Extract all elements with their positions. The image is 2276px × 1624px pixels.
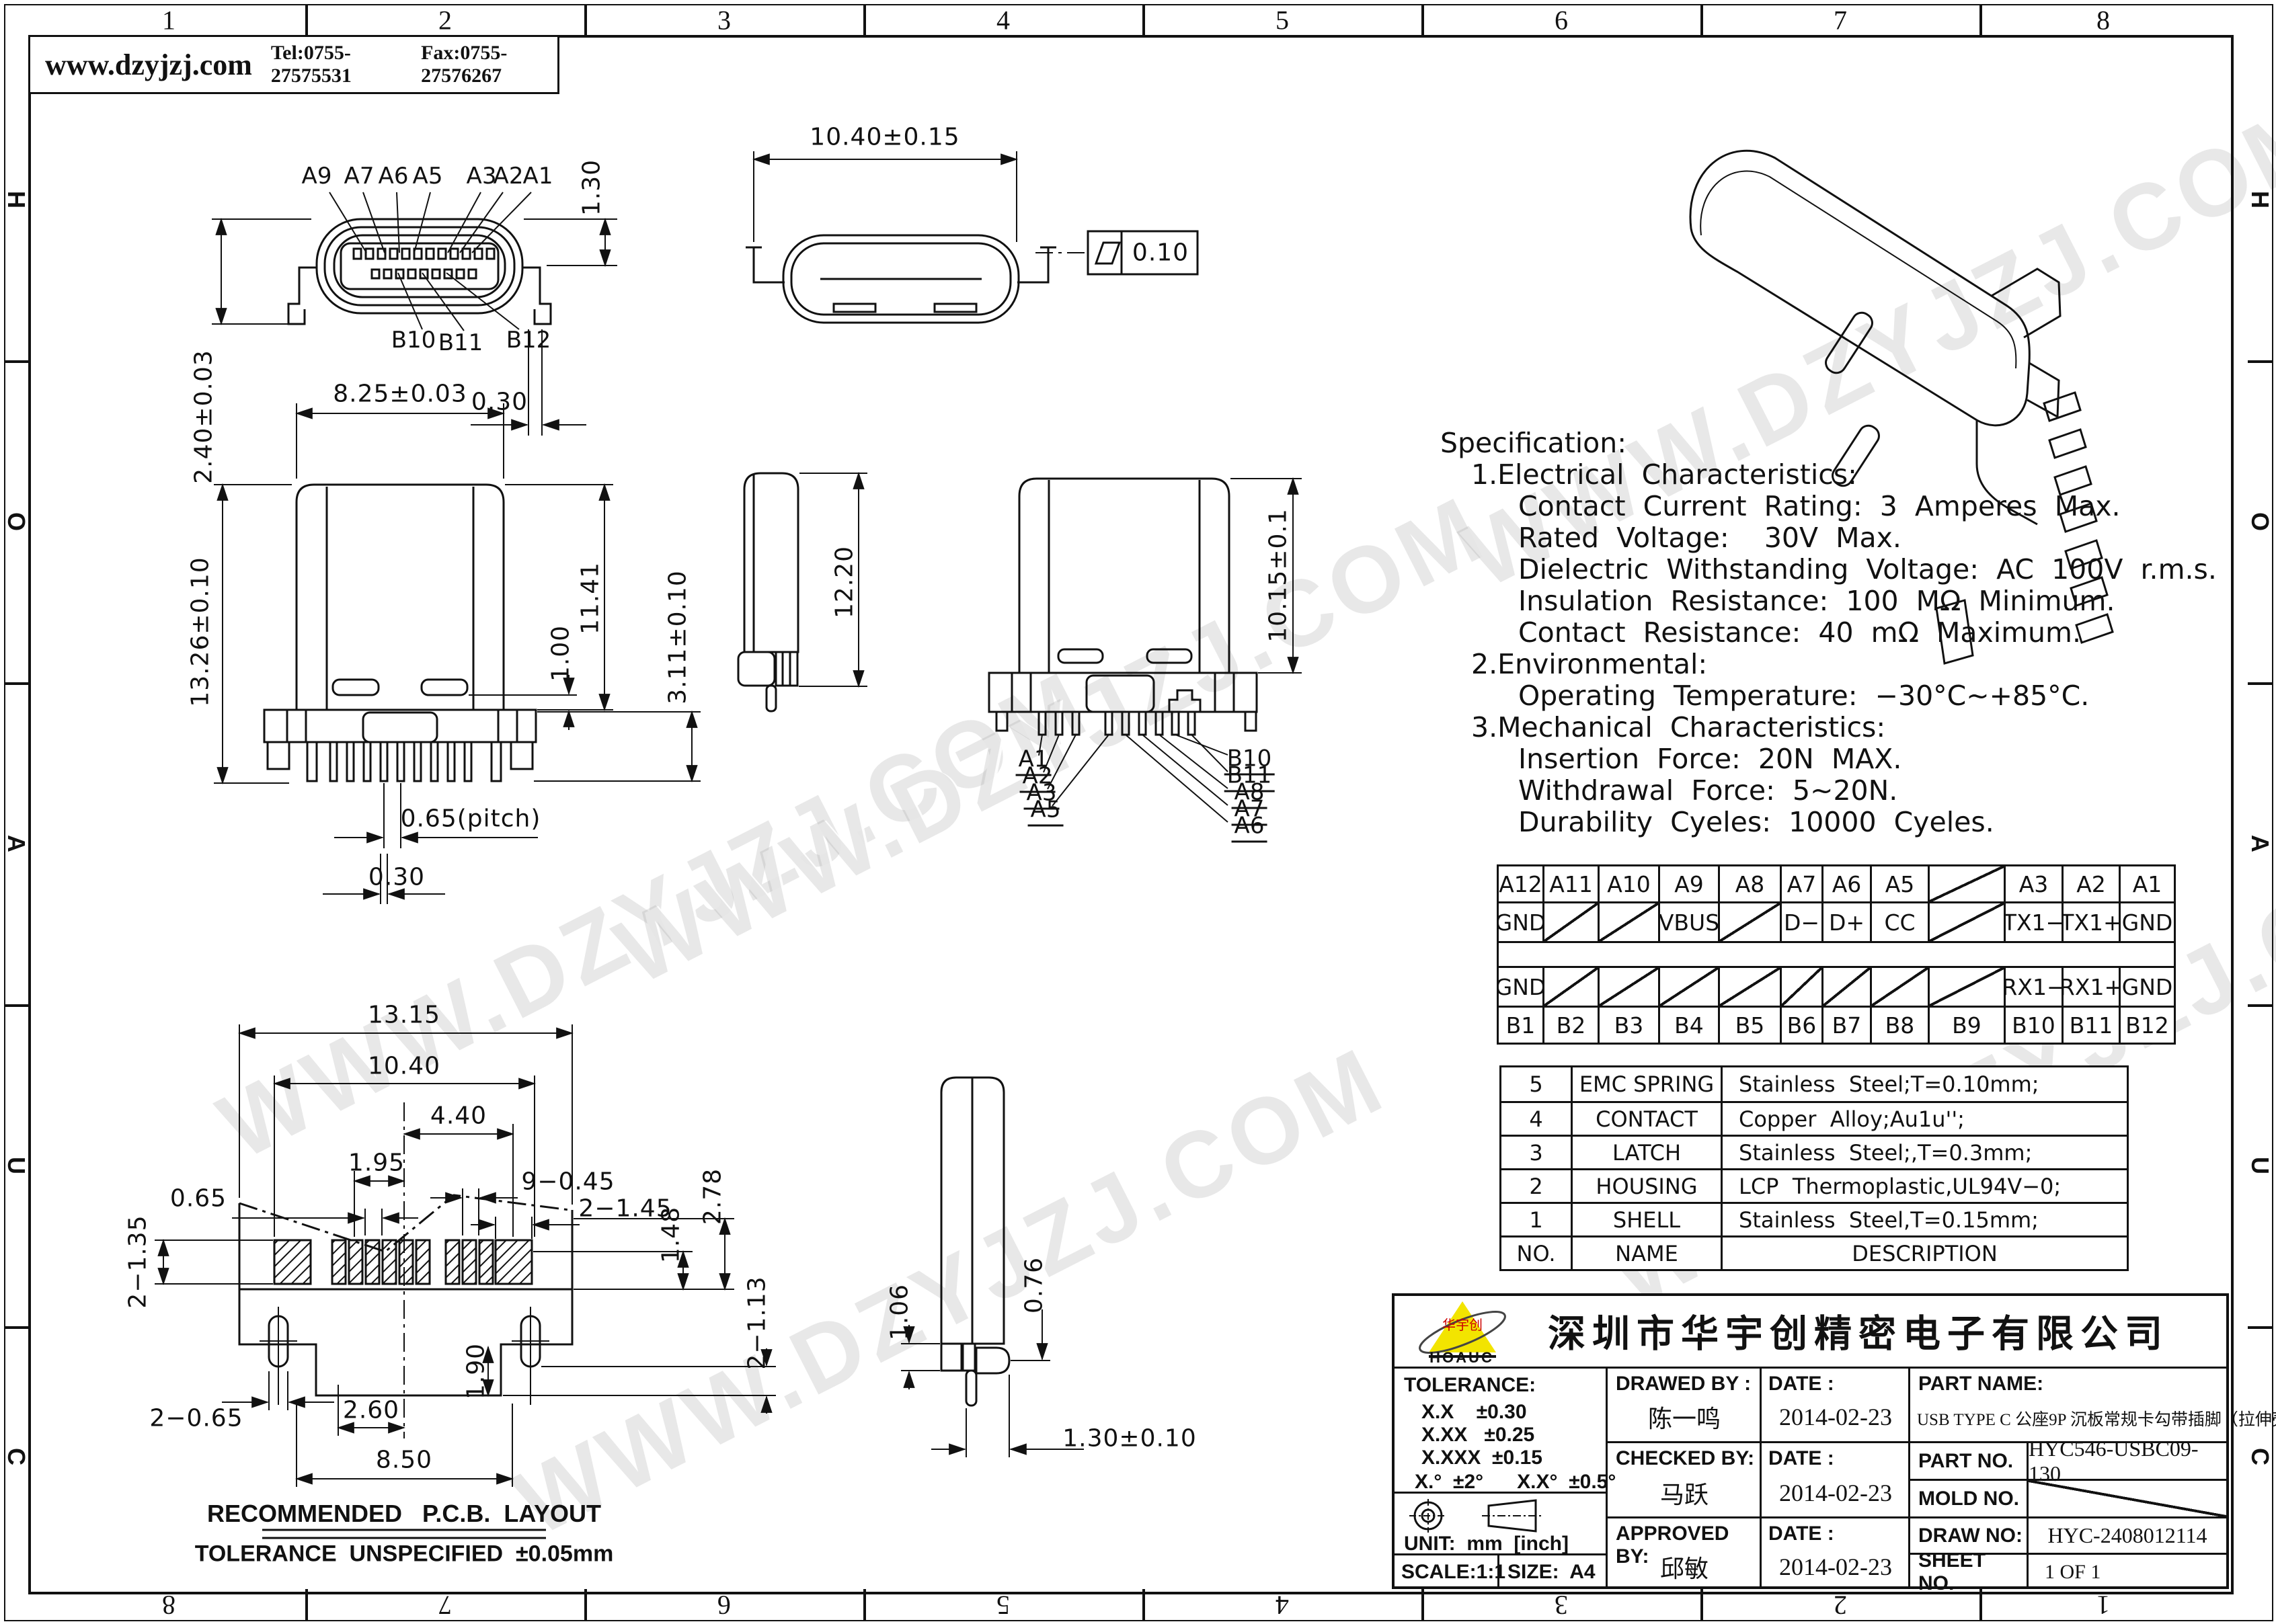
part-name: EMC SPRING <box>1571 1067 1721 1101</box>
part-desc: Stainless Steel,T=0.15mm; <box>1721 1202 2127 1235</box>
dim-pcb-5: 9−0.45 <box>521 1168 615 1196</box>
signal-cell: GND <box>1499 968 1542 1006</box>
tolerance-row: X.XX ±0.25 <box>1421 1424 1534 1447</box>
dim-flange-height: 1.30 <box>578 159 606 216</box>
pin-callout: A6 <box>1232 813 1267 843</box>
pin-cell: B11 <box>2062 1006 2119 1043</box>
dim-height-2: 10.15±0.1 <box>1265 508 1292 642</box>
date-label: DATE : <box>1768 1447 1834 1470</box>
pin-cell: A11 <box>1542 866 1598 901</box>
parts-header-desc: DESCRIPTION <box>1721 1235 2127 1269</box>
sheet-no-label: SHEET NO. <box>1918 1549 2027 1595</box>
title-block: 华宇创 HOAUC 深圳市华宇创精密电子有限公司 TOLERANCE: X.X … <box>1392 1293 2229 1589</box>
pin-cell: A6 <box>1821 866 1870 901</box>
pin-cell: B12 <box>2119 1006 2174 1043</box>
pin-label: B10 <box>391 327 436 354</box>
pin-label: A9 <box>302 163 332 190</box>
signal-cell: TX1+ <box>2062 901 2119 941</box>
signal-cell-blank <box>1718 901 1780 941</box>
dim-body-width: 8.25±0.03 <box>333 380 467 408</box>
signal-cell-blank <box>1780 968 1821 1006</box>
spec-line: Operating Temperature: −30°C~+85°C. <box>1440 680 2227 712</box>
drawed-by-label: DRAWED BY : <box>1616 1373 1751 1395</box>
signal-cell-blank <box>1718 968 1780 1006</box>
drawing-sheet: WWW.DZYJZJ.COM WWW.DZYJZJ.COM WWW.DZYJZJ… <box>0 0 2276 1624</box>
part-no: 5 <box>1501 1067 1571 1101</box>
unit-label: UNIT: mm [inch] <box>1404 1533 1569 1555</box>
part-desc: Copper Alloy;Au1u''; <box>1721 1101 2127 1135</box>
spec-line: Dielectric Withstanding Voltage: AC 100V… <box>1440 554 2227 585</box>
checked-by-name: 马跃 <box>1660 1475 1709 1510</box>
signal-cell: D+ <box>1821 901 1870 941</box>
signal-cell: CC <box>1870 901 1928 941</box>
spec-line: 2.Environmental: <box>1440 649 2227 680</box>
parts-list-table: 5 EMC SPRING Stainless Steel;T=0.10mm; 4… <box>1499 1065 2129 1271</box>
specification-block: Specification: 1.Electrical Characterist… <box>1440 428 2227 838</box>
dim-pcb-14: 1.90 <box>463 1343 490 1399</box>
pin-cell: A3 <box>2004 866 2062 901</box>
signal-cell: GND <box>1499 901 1542 941</box>
dim-tail: 3.11±0.10 <box>664 570 692 704</box>
pin-cell: A12 <box>1499 866 1542 901</box>
part-no: 1 <box>1501 1202 1571 1235</box>
pin-cell: B2 <box>1542 1006 1598 1043</box>
dim-pcb-13: 2.60 <box>343 1397 399 1424</box>
pin-cell: A8 <box>1718 866 1780 901</box>
dim-pcb-6: 0.65 <box>170 1185 227 1213</box>
part-name: SHELL <box>1571 1202 1721 1235</box>
logo-text: 华宇创 <box>1442 1317 1483 1333</box>
pcb-layout-title: RECOMMENDED P.C.B. LAYOUT <box>207 1500 601 1528</box>
pin-cell: B5 <box>1718 1006 1780 1043</box>
parts-header-name: NAME <box>1571 1235 1721 1269</box>
pin-label: A3 <box>467 163 497 190</box>
part-desc: LCP Thermoplastic,UL94V−0; <box>1721 1168 2127 1202</box>
pin-cell: A2 <box>2062 866 2119 901</box>
part-no-label: PART NO. <box>1918 1450 2013 1473</box>
date-value: 2014-02-23 <box>1779 1553 1892 1581</box>
signal-cell: GND <box>2119 901 2174 941</box>
pin-label: A6 <box>379 163 409 190</box>
pin-profile-view <box>901 1078 1084 1457</box>
tolerance-label: TOLERANCE: <box>1404 1374 1536 1397</box>
dim-pcb-11: 2−1.13 <box>744 1276 771 1369</box>
dim-pinview-2: 0.76 <box>1021 1257 1048 1313</box>
pin-label: B11 <box>438 329 483 356</box>
spec-line: Specification: <box>1440 428 2227 459</box>
signal-cell: GND <box>2119 968 2174 1006</box>
fax-text: Fax:0755-27576267 <box>421 42 557 87</box>
dim-pcb-10: 2.78 <box>699 1168 727 1225</box>
signal-cell-blank <box>1658 968 1718 1006</box>
scale-label: SCALE:1:1 <box>1401 1561 1505 1584</box>
pin-cell: B6 <box>1780 1006 1821 1043</box>
pin-label: A1 <box>523 163 553 190</box>
signal-cell: VBUS <box>1658 901 1718 941</box>
tolerance-angle-row: X.° ±2° X.X° ±0.5° <box>1415 1471 1616 1494</box>
tolerance-row: X.XXX ±0.15 <box>1421 1447 1542 1469</box>
size-label: SIZE: A4 <box>1507 1561 1596 1584</box>
projection-symbol <box>1408 1499 1590 1533</box>
signal-cell-blank <box>1821 968 1870 1006</box>
sheet-no-value: 1 OF 1 <box>2045 1561 2101 1584</box>
draw-no-value: HYC-2408012114 <box>2047 1523 2207 1548</box>
dim-total-height: 2.40±0.03 <box>190 350 218 483</box>
signal-cell-blank <box>1598 901 1658 941</box>
signal-cell: RX1− <box>2004 968 2062 1006</box>
dim-pinview-1: 1.06 <box>886 1284 914 1340</box>
dim-depth: 12.20 <box>831 546 859 618</box>
dim-overall-height: 13.26±0.10 <box>187 557 214 706</box>
pcb-tolerance-note: TOLERANCE UNSPECIFIED ±0.05mm <box>195 1541 614 1568</box>
checked-by-label: CHECKED BY: <box>1616 1447 1754 1470</box>
signal-cell-blank <box>1598 968 1658 1006</box>
pin-cell: A7 <box>1780 866 1821 901</box>
spec-line: Insertion Force: 20N MAX. <box>1440 743 2227 775</box>
dim-pcb-4: 1.95 <box>348 1149 405 1177</box>
parts-header-no: NO. <box>1501 1235 1571 1269</box>
signal-cell: RX1+ <box>2062 968 2119 1006</box>
company-contact-bar: www.dzyjzj.com Tel:0755-27575531 Fax:075… <box>28 35 559 94</box>
dim-offset: 0.30 <box>471 389 528 416</box>
pin-cell: A1 <box>2119 866 2174 901</box>
pin-assignment-table: A12 A11 A10 A9 A8 A7 A6 A5 A3 A2 A1 GND … <box>1497 864 2176 1045</box>
signal-cell-blank <box>1542 968 1598 1006</box>
pin-table-gap <box>1499 941 2174 968</box>
part-no: 4 <box>1501 1101 1571 1135</box>
flatness-value: 0.10 <box>1132 239 1189 267</box>
dim-pcb-9: 1.48 <box>658 1207 685 1263</box>
dim-shell-width: 10.40±0.15 <box>810 124 959 151</box>
date-value: 2014-02-23 <box>1779 1403 1892 1431</box>
dim-slot: 1.00 <box>547 625 575 682</box>
part-desc: Stainless Steel;,T=0.3mm; <box>1721 1135 2127 1168</box>
approved-by-name: 邱敏 <box>1660 1549 1709 1584</box>
part-no: 3 <box>1501 1135 1571 1168</box>
pin-label: A2 <box>494 163 524 190</box>
pin-cell: B8 <box>1870 1006 1928 1043</box>
website-text: www.dzyjzj.com <box>45 48 252 82</box>
top-view <box>746 151 1198 323</box>
part-name: LATCH <box>1571 1135 1721 1168</box>
mold-no-blank <box>2027 1479 2226 1516</box>
dim-body-height: 11.41 <box>577 562 604 635</box>
dim-pcb-7: 2−1.35 <box>124 1215 152 1308</box>
spec-line: Rated Voltage: 30V Max. <box>1440 522 2227 554</box>
pin-cell: A10 <box>1598 866 1658 901</box>
dim-pitch: 0.65(pitch) <box>401 805 541 833</box>
signal-cell: D− <box>1780 901 1821 941</box>
date-label: DATE : <box>1768 1522 1834 1545</box>
part-name: CONTACT <box>1571 1101 1721 1135</box>
pin-cell: A5 <box>1870 866 1928 901</box>
dim-pcb-3: 4.40 <box>430 1102 487 1130</box>
logo-sub-text: HOAUC <box>1429 1349 1494 1367</box>
dim-pcb-12: 2−0.65 <box>149 1405 243 1432</box>
pin-cell: A9 <box>1658 866 1718 901</box>
tel-text: Tel:0755-27575531 <box>271 42 402 87</box>
dim-pin-width: 0.30 <box>368 864 425 891</box>
pin-cell: B7 <box>1821 1006 1870 1043</box>
spec-line: 3.Mechanical Characteristics: <box>1440 712 2227 743</box>
signal-cell: TX1− <box>2004 901 2062 941</box>
date-label: DATE : <box>1768 1373 1834 1395</box>
dim-pcb-1: 13.15 <box>368 1002 440 1029</box>
part-no: 2 <box>1501 1168 1571 1202</box>
drawed-by-name: 陈一鸣 <box>1648 1399 1721 1434</box>
part-name-label: PART NAME: <box>1918 1373 2043 1395</box>
part-name-value: USB TYPE C 公座9P 沉板常规卡勾带插脚（拉伸壳） <box>1917 1406 2276 1430</box>
pin-cell: B1 <box>1499 1006 1542 1043</box>
part-desc: Stainless Steel;T=0.10mm; <box>1721 1067 2127 1101</box>
signal-cell-blank <box>1542 901 1598 941</box>
dim-pcb-2: 10.40 <box>368 1053 440 1080</box>
pin-callout: A5 <box>1028 797 1064 827</box>
signal-cell-blank <box>1928 968 2004 1006</box>
tolerance-row: X.X ±0.30 <box>1421 1401 1527 1424</box>
pin-label: A5 <box>413 163 443 190</box>
spec-line: Contact Resistance: 40 mΩ Maximum. <box>1440 617 2227 649</box>
pin-cell: B9 <box>1928 1006 2004 1043</box>
spec-line: Contact Current Rating: 3 Amperes Max. <box>1440 491 2227 522</box>
spec-line: 1.Electrical Characteristics: <box>1440 459 2227 491</box>
pin-label: B12 <box>506 327 551 354</box>
pin-cell: B3 <box>1598 1006 1658 1043</box>
pin-cell: B4 <box>1658 1006 1718 1043</box>
draw-no-label: DRAW NO: <box>1918 1525 2023 1547</box>
signal-cell-blank <box>1870 968 1928 1006</box>
date-value: 2014-02-23 <box>1779 1479 1892 1507</box>
pin-cell: B10 <box>2004 1006 2062 1043</box>
spec-line: Withdrawal Force: 5~20N. <box>1440 775 2227 807</box>
company-name: 深圳市华宇创精密电子有限公司 <box>1548 1304 2169 1358</box>
part-name: HOUSING <box>1571 1168 1721 1202</box>
pin-label: A7 <box>344 163 375 190</box>
mold-no-label: MOLD NO. <box>1918 1488 2019 1510</box>
dim-pinview-3: 1.30±0.10 <box>1062 1425 1196 1453</box>
dim-pcb-15: 8.50 <box>376 1447 432 1474</box>
spec-line: Durability Cyeles: 10000 Cyeles. <box>1440 807 2227 838</box>
pin-cell-blank <box>1928 866 2004 901</box>
signal-cell-blank <box>1928 901 2004 941</box>
spec-line: Insulation Resistance: 100 MΩ Minimum. <box>1440 585 2227 617</box>
